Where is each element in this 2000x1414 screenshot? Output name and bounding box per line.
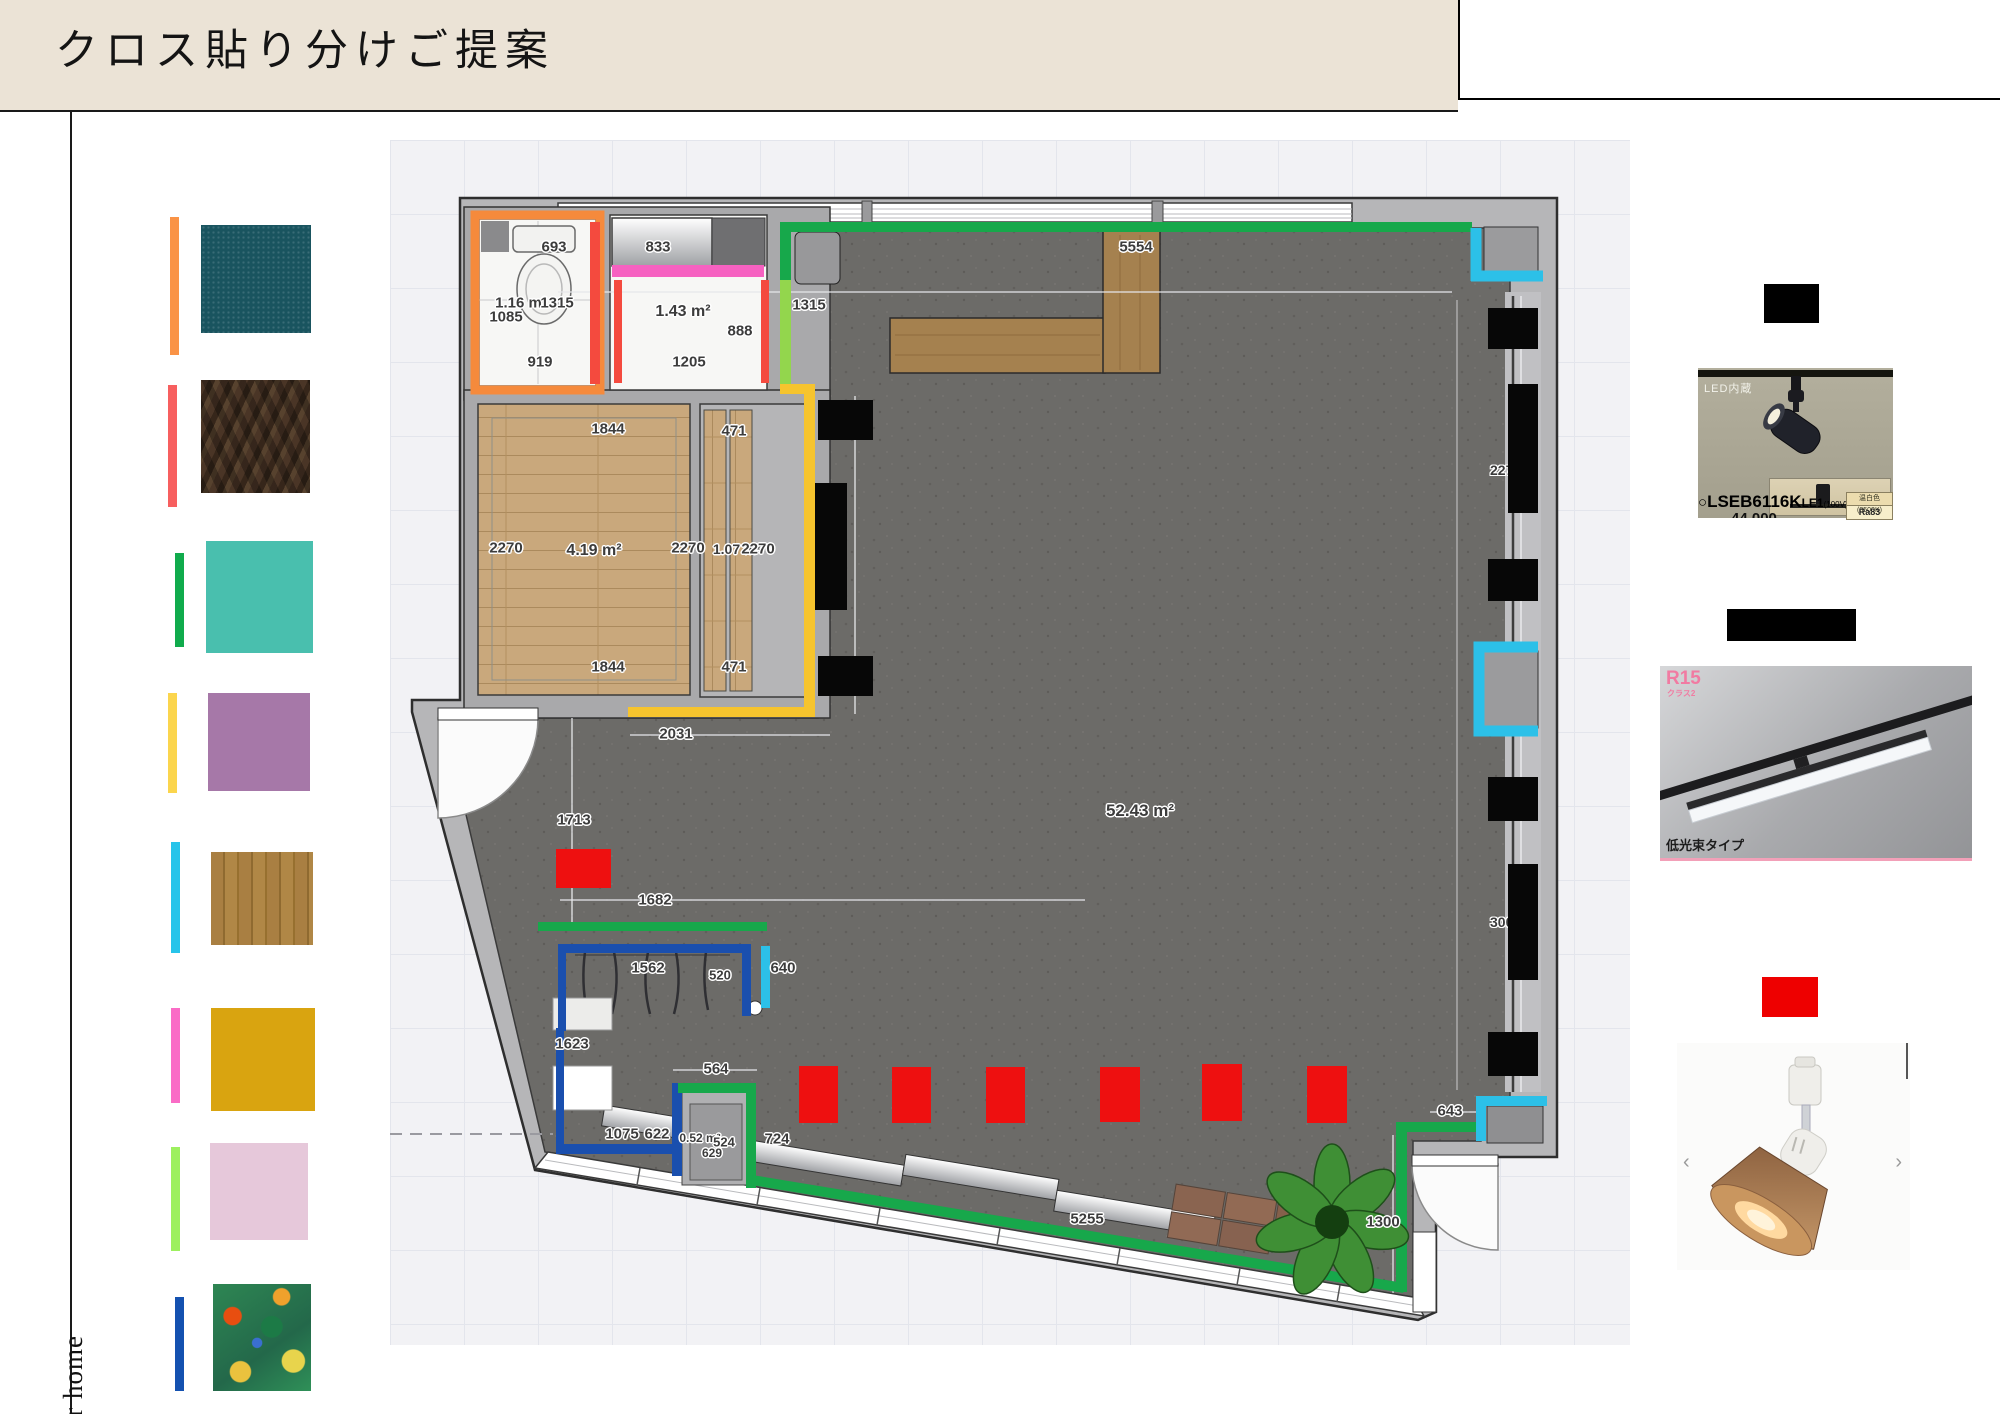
dim-label: 643 [1437,1103,1462,1120]
dim-label: 2031 [659,726,692,743]
dim-label: 1300 [1366,1214,1399,1231]
sink-cabinet [712,218,765,266]
dim-label: 1844 [591,659,624,676]
dim-label: 2270 [489,540,522,557]
dim-label: 52.43 m² [1106,801,1174,821]
dim-label: 1315 [792,297,825,314]
dim-label: 1713 [557,812,590,829]
black-fixture-tall [1508,384,1538,513]
entry-door-leaf [438,708,538,720]
dim-label: 564 [703,1061,728,1078]
terrace-door-leaf [1412,1155,1498,1166]
dim-label: 629 [702,1146,722,1160]
dim-label: 919 [527,354,552,371]
corner-window [1413,1232,1436,1312]
window-mullion [1152,201,1163,224]
dim-label: 471 [721,659,746,676]
dim-label: 1085 [489,309,522,326]
dim-label: 471 [721,423,746,440]
floorplan-drawing [0,0,2000,1414]
dim-label: 640 [770,960,795,977]
toilet-room-corner [481,221,509,252]
gray-unit [795,232,840,284]
dim-label: 5554 [1119,239,1152,256]
black-fixture-tall [1508,864,1538,980]
dim-label: 520 [709,968,731,983]
alcove-bottom [1487,1106,1543,1143]
dim-label: 5255 [1070,1211,1103,1228]
alcove-top [1484,227,1538,271]
dim-label: 693 [541,239,566,256]
dim-label: 1682 [638,892,671,909]
dim-label: 1844 [591,421,624,438]
page: クロス貼り分けご提案 Suggestions to improve your h… [0,0,2000,1414]
alcove-mid [1483,651,1538,728]
dim-label: 2270 [671,540,704,557]
window-mullion [862,201,872,224]
dim-label: 622 [644,1126,669,1143]
dim-label: 1205 [672,354,705,371]
dim-label: 2270 [741,541,774,558]
dim-label: 1075 [605,1126,638,1143]
dim-label: 4.19 m² [566,542,621,560]
dim-label: 724 [764,1131,789,1148]
dim-label: 888 [727,323,752,340]
dim-label: 1562 [631,960,664,977]
dim-label: 1623 [555,1036,588,1053]
dim-label: 1.43 m² [655,303,710,321]
dim-label: 1315 [540,295,573,312]
dim-label: 833 [645,239,670,256]
